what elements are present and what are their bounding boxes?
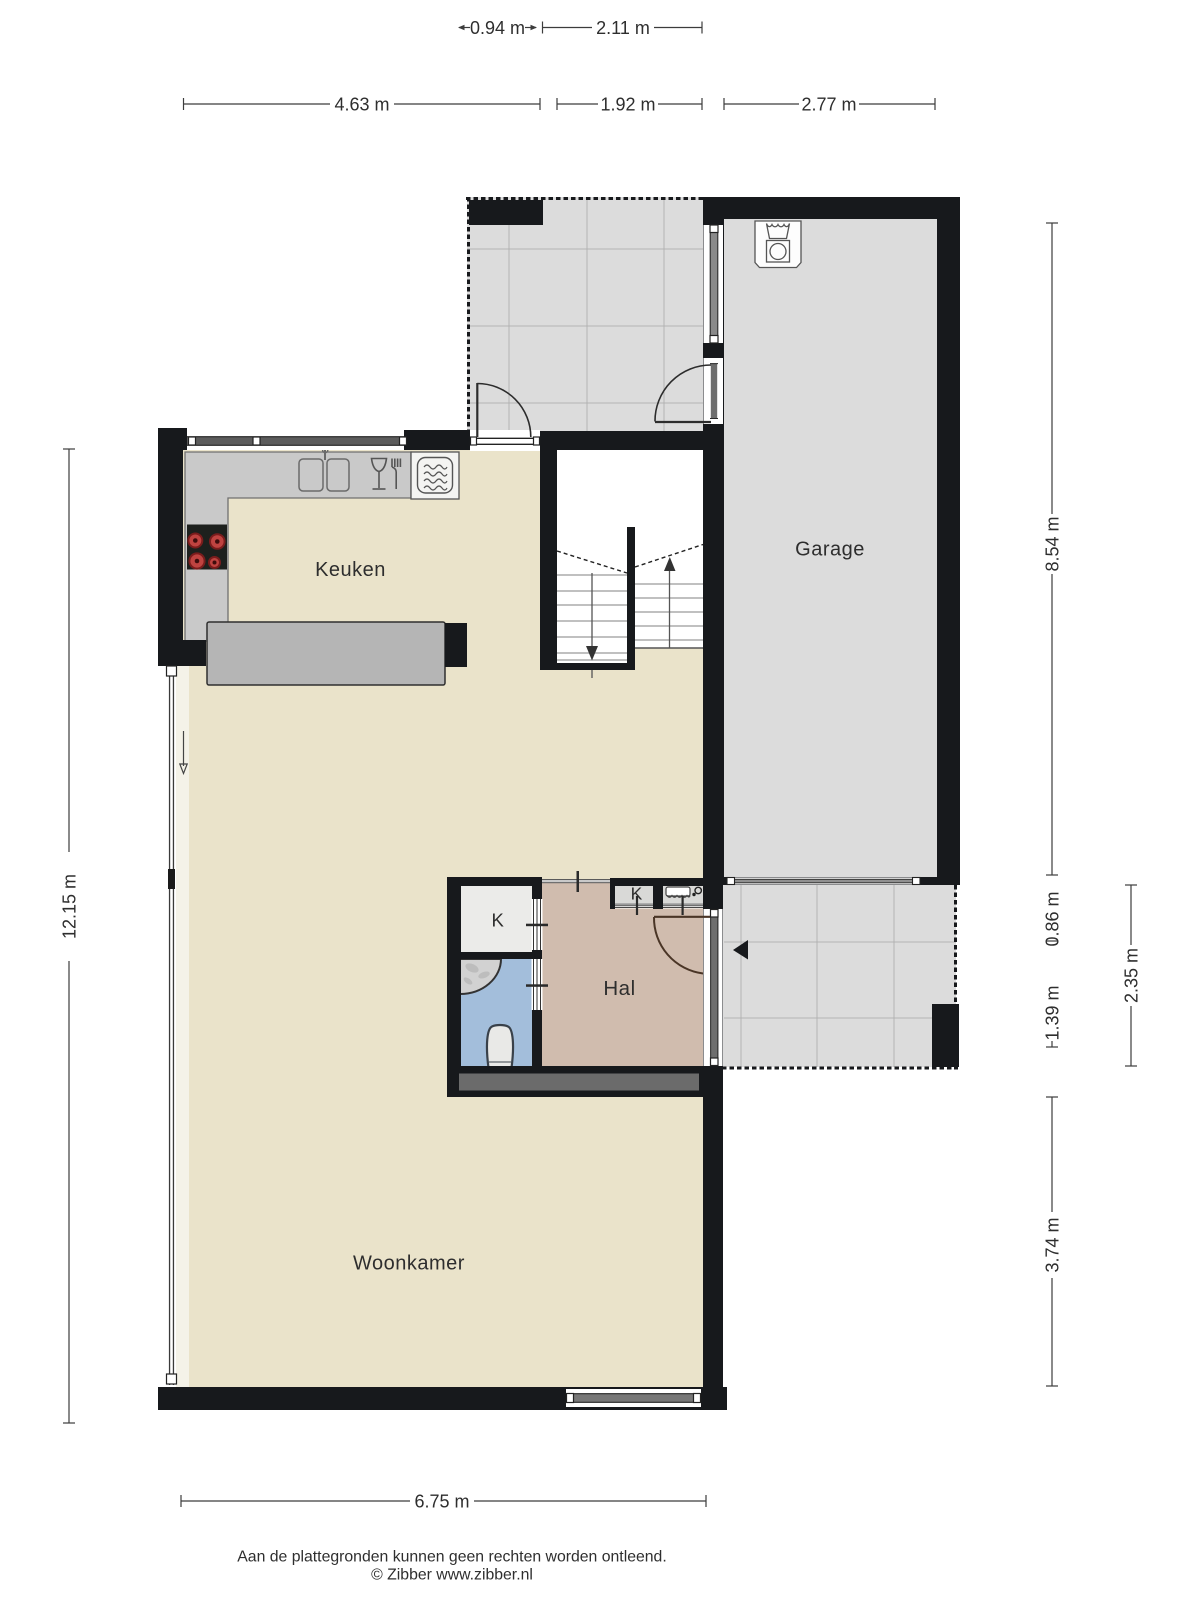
svg-text:K: K [631, 884, 643, 904]
svg-text:4.63 m: 4.63 m [334, 95, 389, 115]
svg-text:0.86 m: 0.86 m [1043, 891, 1063, 946]
svg-text:K: K [492, 910, 505, 931]
svg-text:8.54 m: 8.54 m [1043, 516, 1063, 571]
svg-text:© Zibber www.zibber.nl: © Zibber www.zibber.nl [371, 1567, 533, 1584]
svg-text:Keuken: Keuken [315, 559, 386, 581]
svg-text:12.15 m: 12.15 m [60, 874, 80, 939]
svg-text:Garage: Garage [795, 539, 865, 561]
svg-text:1.39 m: 1.39 m [1043, 985, 1063, 1040]
svg-text:1.92 m: 1.92 m [600, 95, 655, 115]
svg-text:2.35 m: 2.35 m [1122, 948, 1142, 1003]
svg-text:2.77 m: 2.77 m [801, 95, 856, 115]
svg-text:3.74 m: 3.74 m [1043, 1217, 1063, 1272]
svg-text:Woonkamer: Woonkamer [353, 1253, 465, 1275]
svg-text:6.75 m: 6.75 m [414, 1492, 469, 1512]
svg-text:0.94 m: 0.94 m [470, 18, 525, 38]
svg-text:Hal: Hal [603, 977, 635, 1000]
svg-text:2.11 m: 2.11 m [596, 18, 650, 38]
svg-text:Aan de plattegronden kunnen ge: Aan de plattegronden kunnen geen rechten… [237, 1549, 667, 1566]
